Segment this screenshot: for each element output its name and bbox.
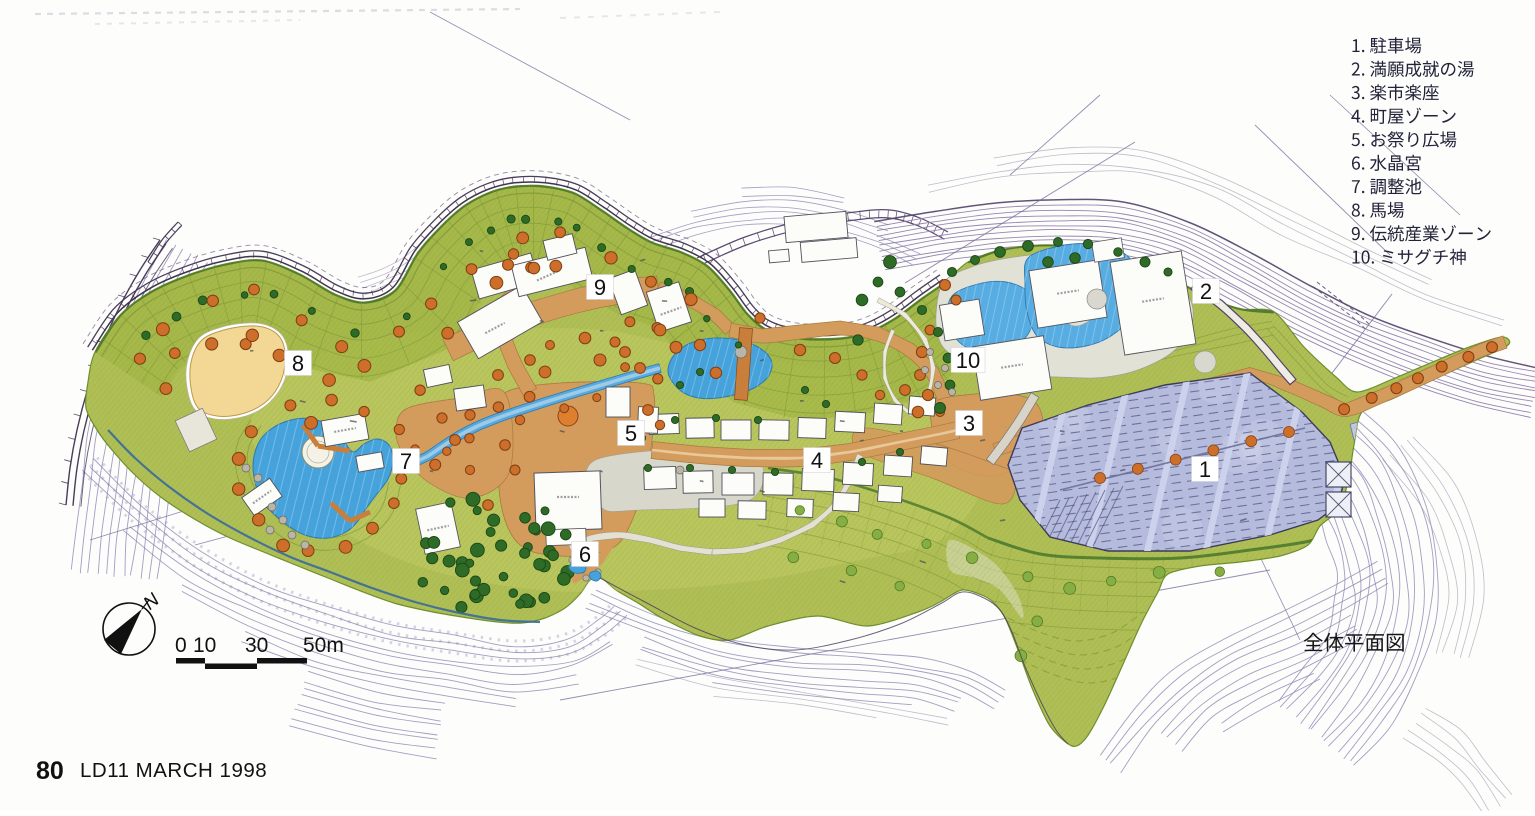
svg-text:5: 5	[625, 421, 637, 446]
svg-text:30: 30	[245, 634, 268, 657]
svg-text:7: 7	[400, 449, 412, 474]
svg-text:1: 1	[1199, 457, 1211, 482]
svg-text:80: 80	[36, 757, 64, 785]
svg-text:10: 10	[193, 634, 216, 657]
svg-text:LD11 MARCH 1998: LD11 MARCH 1998	[80, 759, 267, 782]
svg-text:4: 4	[811, 448, 823, 473]
svg-text:3: 3	[963, 411, 975, 436]
svg-text:50m: 50m	[303, 634, 344, 657]
svg-text:9: 9	[594, 275, 606, 300]
svg-text:2: 2	[1200, 279, 1212, 304]
svg-text:10: 10	[956, 348, 980, 373]
svg-text:6: 6	[579, 542, 591, 567]
svg-text:0: 0	[175, 634, 187, 657]
svg-text:8: 8	[292, 351, 304, 376]
